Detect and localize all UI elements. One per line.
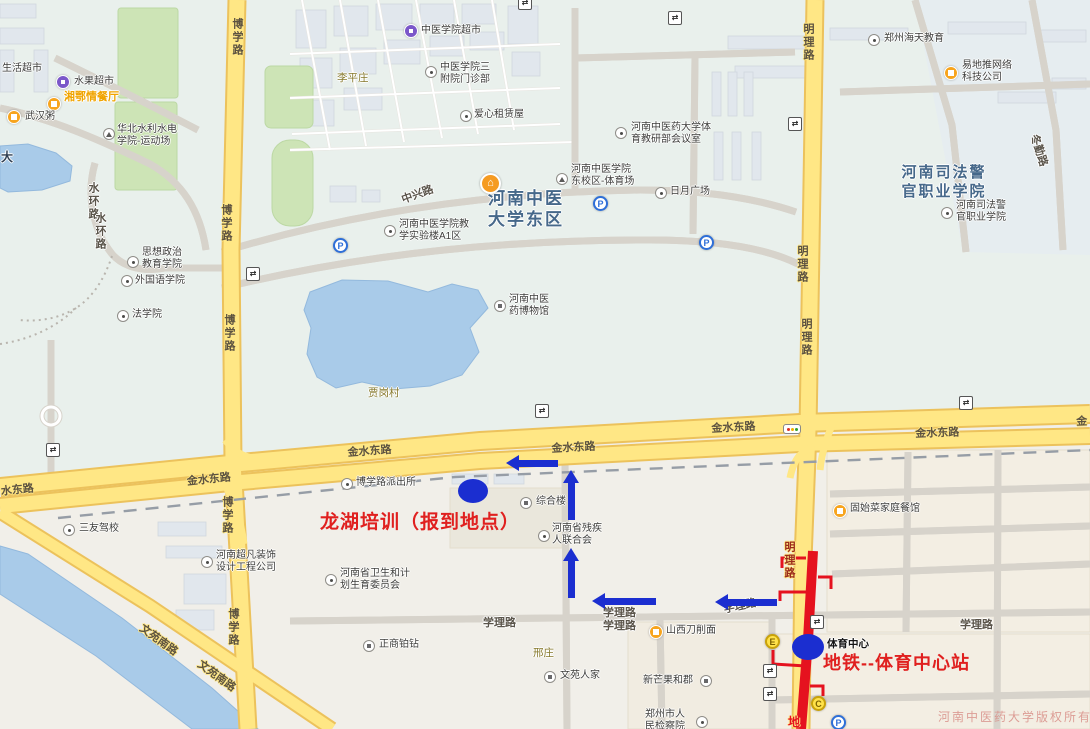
poi-label[interactable]: 郑州海天教育 (884, 33, 944, 45)
poi-label[interactable]: 思想政治教育学院 (142, 247, 182, 270)
poi-label[interactable]: 华北水利水电学院-运动场 (117, 124, 177, 147)
parking-icon[interactable]: P (831, 715, 846, 729)
turn-restriction-icon: ⇄ (246, 267, 260, 281)
campus-label-line: 河南司法警 (864, 163, 1024, 182)
poi-label[interactable]: 法学院 (132, 309, 162, 321)
bld-poi-icon[interactable] (363, 640, 375, 652)
poi-label-line: 华北水利水电 (117, 124, 177, 136)
route-arrow-left (715, 594, 777, 610)
poi-label-line: 易地推网络 (962, 60, 1012, 72)
poi-label-line: 附院门诊部 (440, 74, 490, 86)
poi-label[interactable]: 正商铂钻 (379, 639, 419, 651)
poi-label[interactable]: 湘鄂情餐厅 (64, 92, 119, 104)
poi-label[interactable]: 爱心租赁屋 (474, 109, 524, 121)
parking-icon[interactable]: P (333, 238, 348, 253)
poi-label-line: 固始菜家庭餐馆 (850, 503, 920, 515)
poi-label-line: 东校区-体育场 (571, 176, 634, 188)
training-location-annotation: 龙湖培训（报到地点） (320, 507, 520, 534)
poi-label-line: 官职业学院 (956, 212, 1006, 224)
campus-label-judicial-police-college[interactable]: 河南司法警 官职业学院 (864, 163, 1024, 201)
turn-restriction-icon: ⇄ (810, 615, 824, 629)
poi-label-line: 河南司法警 (956, 200, 1006, 212)
generic-poi-icon[interactable] (696, 716, 708, 728)
road-label: 金水东路 (551, 438, 596, 456)
turn-restriction-icon: ⇄ (788, 117, 802, 131)
road-label: 博学路 (218, 204, 234, 243)
poi-label-line: 科技公司 (962, 72, 1012, 84)
poi-label-line: 新芒果和郡 (643, 675, 693, 687)
poi-label[interactable]: 三友驾校 (79, 523, 119, 535)
poi-label[interactable]: 河南中医学院东校区-体育场 (571, 164, 634, 187)
poi-label[interactable]: 水果超市 (74, 76, 114, 88)
poi-label-line: 郑州海天教育 (884, 33, 944, 45)
generic-poi-icon[interactable] (341, 478, 353, 490)
campus-label-line: 河南中医 (446, 188, 606, 209)
turn-restriction-icon: ⇄ (668, 11, 682, 25)
watermark: 河南中医药大学版权所有 (938, 708, 1090, 725)
poi-label[interactable]: 外国语学院 (135, 275, 185, 287)
poi-label-line: 文苑人家 (560, 670, 600, 682)
route-arrow-left (506, 455, 558, 471)
road-label: 博学路 (229, 18, 245, 57)
poi-label-line: 学院-运动场 (117, 136, 177, 148)
route-marker-dot (458, 479, 488, 503)
road-label: 金水东路 (186, 468, 231, 489)
campus-landmark-house-icon[interactable]: ⌂ (480, 173, 501, 194)
village-label: 邢庄 (533, 645, 554, 660)
poi-label[interactable]: 河南省卫生和计划生育委员会 (340, 568, 410, 591)
road-label: 文苑南路 (195, 656, 240, 695)
poi-label-line: 河南省残疾 (552, 523, 602, 535)
poi-label-line: 湘鄂情餐厅 (64, 92, 119, 104)
poi-label[interactable]: 生活超市 (2, 63, 42, 75)
poi-label[interactable]: 易地推网络科技公司 (962, 60, 1012, 83)
parking-icon[interactable]: P (699, 235, 714, 250)
road-label: 学理路 (483, 614, 516, 630)
generic-poi-icon[interactable] (384, 225, 396, 237)
road-label: 金水东路 (915, 423, 960, 441)
arrow-shaft (568, 560, 575, 598)
poi-label-line: 山西刀削面 (666, 625, 716, 637)
turn-restriction-icon: ⇄ (518, 0, 532, 10)
road-label: 冬勤路 (1027, 132, 1052, 168)
bld-poi-icon[interactable] (700, 675, 712, 687)
poi-label[interactable]: 文苑人家 (560, 670, 600, 682)
road-label: 金水东路 (711, 418, 756, 436)
road-label: 水环路 (92, 212, 108, 251)
poi-label[interactable]: 新芒果和郡 (643, 675, 693, 687)
poi-label-line: 人联合会 (552, 535, 602, 547)
village-label: 贾岗村 (368, 385, 400, 400)
road-label: 水东路 (0, 480, 34, 499)
poi-label-line: 爱心租赁屋 (474, 109, 524, 121)
road-label: 金水东路 (347, 441, 392, 460)
map-canvas[interactable]: 生活超市水果超市湘鄂情餐厅武汉粥华北水利水电学院-运动场中医学院超市中医学院三附… (0, 0, 1090, 729)
food-poi-icon[interactable] (944, 66, 958, 80)
poi-label[interactable]: 河南中医药大学体育教研部会议室 (631, 122, 711, 145)
arrow-shaft (568, 482, 575, 520)
generic-poi-icon[interactable] (117, 310, 129, 322)
poi-label-line: 外国语学院 (135, 275, 185, 287)
road-label: 博学路 (219, 496, 235, 535)
poi-label-line: 河南中医学院 (571, 164, 634, 176)
poi-label-line: 河南中医药大学体 (631, 122, 711, 134)
poi-label-line: 育教研部会议室 (631, 134, 711, 146)
turn-restriction-icon: ⇄ (46, 443, 60, 457)
road-label: 学理路 (960, 616, 993, 632)
route-arrow-left (592, 593, 656, 609)
poi-label[interactable]: 河南中医药博物馆 (509, 294, 549, 317)
road-label: 学理路 (603, 617, 636, 633)
road-label: 明理路 (798, 318, 814, 357)
campus-label-line: 官职业学院 (864, 182, 1024, 201)
poi-label-line: 郑州市人 (645, 709, 685, 721)
poi-label-line: 中医学院三 (440, 62, 490, 74)
food-poi-icon[interactable] (649, 625, 663, 639)
poi-label[interactable]: 河南司法警官职业学院 (956, 200, 1006, 223)
poi-label[interactable]: 博学路派出所 (356, 477, 416, 489)
poi-label-line: 药博物馆 (509, 306, 549, 318)
poi-label[interactable]: 河南省残疾人联合会 (552, 523, 602, 546)
poi-label[interactable]: 日月广场 (670, 186, 710, 198)
sport-poi-icon[interactable] (103, 128, 115, 140)
poi-label-line: 日月广场 (670, 186, 710, 198)
generic-poi-icon[interactable] (201, 556, 213, 568)
route-arrow-up (563, 548, 579, 598)
poi-label[interactable]: 武汉粥 (25, 111, 55, 123)
bld-poi-icon[interactable] (544, 671, 556, 683)
poi-label[interactable]: 中医学院三附院门诊部 (440, 62, 490, 85)
metro-exit-e-icon[interactable]: E (765, 634, 780, 649)
turn-restriction-icon: ⇄ (959, 396, 973, 410)
metro-line-partial-label: 地 (788, 713, 800, 729)
arrow-shaft (518, 460, 558, 467)
poi-label-line: 武汉粥 (25, 111, 55, 123)
poi-label-line: 河南超凡装饰 (216, 550, 276, 562)
poi-label[interactable]: 中医学院超市 (421, 25, 481, 37)
generic-poi-icon[interactable] (655, 187, 667, 199)
generic-poi-icon[interactable] (425, 66, 437, 78)
generic-poi-icon[interactable] (121, 275, 133, 287)
food-poi-icon[interactable] (7, 110, 21, 124)
poi-label-line: 民检察院 (645, 721, 685, 729)
village-label: 李平庄 (337, 70, 369, 85)
generic-poi-icon[interactable] (538, 530, 550, 542)
metro-exit-c-icon[interactable]: C (811, 696, 826, 711)
campus-label-line: 大学东区 (446, 209, 606, 230)
map-overlay-layer: 生活超市水果超市湘鄂情餐厅武汉粥华北水利水电学院-运动场中医学院超市中医学院三附… (0, 0, 1090, 729)
poi-label-line: 水果超市 (74, 76, 114, 88)
shop-poi-icon[interactable] (404, 24, 418, 38)
generic-poi-icon[interactable] (868, 34, 880, 46)
generic-poi-icon[interactable] (127, 256, 139, 268)
poi-label-line: 划生育委员会 (340, 580, 410, 592)
route-marker-dot (792, 634, 824, 660)
metro-station-annotation: 地铁--体育中心站 (823, 649, 970, 675)
bld-poi-icon[interactable] (520, 497, 532, 509)
poi-label-line: 设计工程公司 (216, 562, 276, 574)
generic-poi-icon[interactable] (941, 207, 953, 219)
road-label: 明理路 (800, 23, 816, 62)
turn-restriction-icon: ⇄ (763, 687, 777, 701)
shop-poi-icon[interactable] (56, 75, 70, 89)
poi-label[interactable]: 河南超凡装饰设计工程公司 (216, 550, 276, 573)
arrow-shaft (604, 598, 656, 605)
poi-label[interactable]: 固始菜家庭餐馆 (850, 503, 920, 515)
generic-poi-icon[interactable] (325, 574, 337, 586)
turn-restriction-icon: ⇄ (763, 664, 777, 678)
road-label: 博学路 (221, 314, 237, 353)
food-poi-icon[interactable] (833, 504, 847, 518)
road-label: 明理路 (781, 541, 797, 580)
poi-label-line: 学实验楼A1区 (399, 231, 469, 243)
bld-poi-icon[interactable] (494, 300, 506, 312)
route-arrow-up (563, 470, 579, 520)
road-label: 中兴路 (399, 181, 435, 207)
poi-label-line: 博学路派出所 (356, 477, 416, 489)
poi-label[interactable]: 山西刀削面 (666, 625, 716, 637)
road-label: 金 (1076, 413, 1088, 429)
partial-map-label: 大 (1, 148, 13, 165)
traffic-light-icon (783, 424, 801, 434)
poi-label[interactable]: 综合楼 (536, 496, 566, 508)
generic-poi-icon[interactable] (63, 524, 75, 536)
poi-label-line: 教育学院 (142, 259, 182, 271)
generic-poi-icon[interactable] (460, 110, 472, 122)
sport-poi-icon[interactable] (556, 173, 568, 185)
poi-label-line: 生活超市 (2, 63, 42, 75)
generic-poi-icon[interactable] (615, 127, 627, 139)
food-poi-icon[interactable] (47, 97, 61, 111)
arrow-shaft (727, 599, 777, 606)
poi-label-line: 综合楼 (536, 496, 566, 508)
road-label: 博学路 (225, 608, 241, 647)
campus-label-hnucm-east[interactable]: 河南中医 大学东区 (446, 188, 606, 230)
turn-restriction-icon: ⇄ (535, 404, 549, 418)
road-label: 文苑南路 (137, 620, 182, 659)
poi-label-line: 河南中医 (509, 294, 549, 306)
poi-label-line: 河南省卫生和计 (340, 568, 410, 580)
poi-label-line: 思想政治 (142, 247, 182, 259)
poi-label-line: 正商铂钻 (379, 639, 419, 651)
poi-label-line: 中医学院超市 (421, 25, 481, 37)
poi-label[interactable]: 郑州市人民检察院 (645, 709, 685, 729)
road-label: 明理路 (794, 245, 810, 284)
poi-label-line: 三友驾校 (79, 523, 119, 535)
poi-label-line: 法学院 (132, 309, 162, 321)
